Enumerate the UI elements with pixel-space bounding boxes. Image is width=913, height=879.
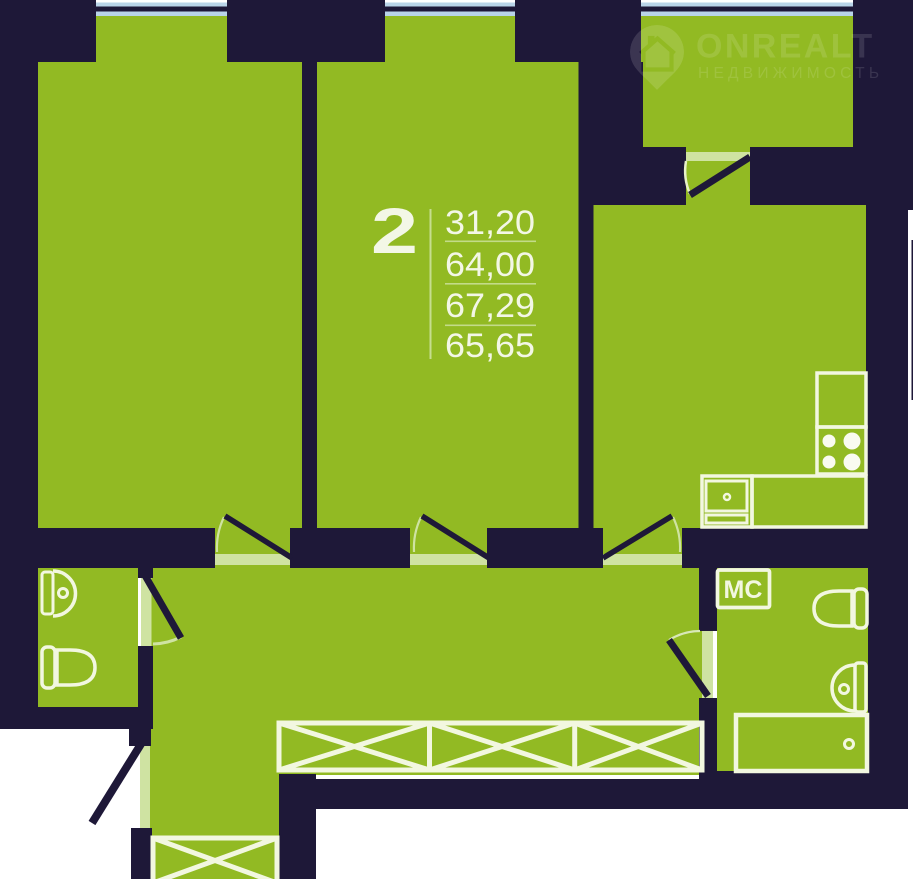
svg-text:ONREALT: ONREALT [696, 28, 874, 66]
svg-text:67,29: 67,29 [445, 287, 535, 325]
svg-text:НЕДВИЖИМОСТЬ: НЕДВИЖИМОСТЬ [698, 65, 884, 82]
svg-text:65,65: 65,65 [445, 327, 535, 365]
svg-text:МС: МС [724, 576, 763, 604]
svg-text:64,00: 64,00 [445, 246, 535, 284]
svg-text:31,20: 31,20 [445, 204, 535, 242]
svg-text:2: 2 [371, 195, 418, 267]
